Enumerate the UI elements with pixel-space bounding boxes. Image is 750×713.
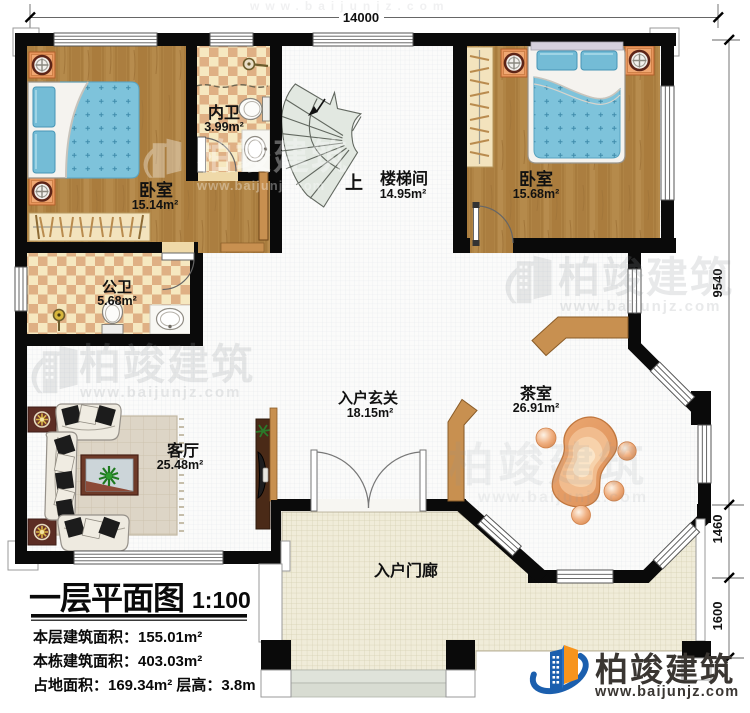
svg-text:卧室: 卧室 xyxy=(139,180,173,200)
svg-text:1460: 1460 xyxy=(710,515,725,544)
svg-text:1:100: 1:100 xyxy=(192,587,251,613)
svg-text:本栋建筑面积：403.03m²: 本栋建筑面积：403.03m² xyxy=(33,652,202,670)
svg-text:入户门廊: 入户门廊 xyxy=(374,561,438,580)
svg-text:占地面积：169.34m² 层高：3.8m: 占地面积：169.34m² 层高：3.8m xyxy=(33,676,256,694)
svg-text:上: 上 xyxy=(345,173,363,193)
svg-text:15.14m²: 15.14m² xyxy=(132,198,179,212)
svg-text:柏竣建筑: 柏竣建筑 xyxy=(558,254,734,301)
svg-text:柏竣建筑: 柏竣建筑 xyxy=(448,439,648,491)
svg-text:26.91m²: 26.91m² xyxy=(513,401,560,415)
svg-text:卧室: 卧室 xyxy=(519,169,553,189)
svg-text:5.68m²: 5.68m² xyxy=(97,294,137,308)
svg-text:1600: 1600 xyxy=(710,602,725,631)
svg-text:15.68m²: 15.68m² xyxy=(513,187,560,201)
svg-text:25.48m²: 25.48m² xyxy=(157,458,204,472)
svg-text:14.95m²: 14.95m² xyxy=(380,187,427,201)
svg-text:3.99m²: 3.99m² xyxy=(204,120,244,134)
svg-text:www.baijunjz.com: www.baijunjz.com xyxy=(477,489,648,506)
svg-text:柏竣建筑: 柏竣建筑 xyxy=(595,651,735,688)
svg-text:www.baijunjz.com: www.baijunjz.com xyxy=(594,684,739,700)
svg-text:柏竣建筑: 柏竣建筑 xyxy=(197,136,349,177)
svg-text:18.15m²: 18.15m² xyxy=(347,406,394,420)
svg-text:一层平面图: 一层平面图 xyxy=(29,580,184,616)
svg-text:本层建筑面积：155.01m²: 本层建筑面积：155.01m² xyxy=(33,628,202,646)
svg-text:www.baijunjz.com: www.baijunjz.com xyxy=(559,298,721,315)
svg-text:柏竣建筑: 柏竣建筑 xyxy=(79,341,255,388)
svg-text:www.baijunjz.com: www.baijunjz.com xyxy=(79,384,241,401)
svg-text:楼梯间: 楼梯间 xyxy=(380,169,428,188)
svg-text:入户玄关: 入户玄关 xyxy=(338,389,398,407)
svg-text:www.baijunjz.com: www.baijunjz.com xyxy=(196,178,325,193)
svg-text:www.baijunjz.com: www.baijunjz.com xyxy=(249,0,450,13)
